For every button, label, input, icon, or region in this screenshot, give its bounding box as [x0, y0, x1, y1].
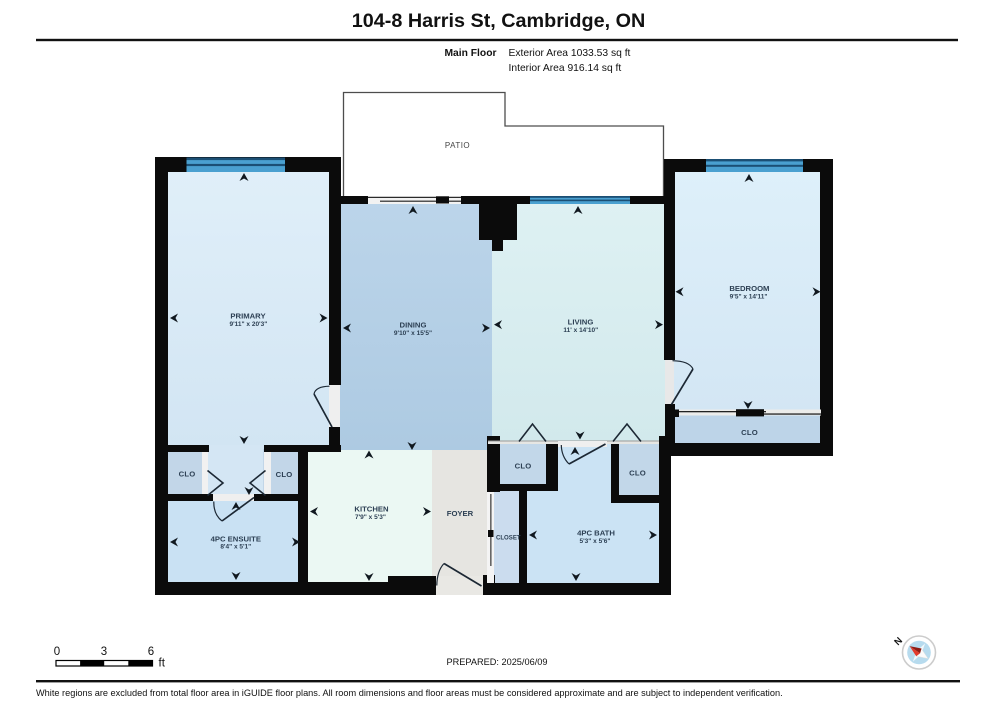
- svg-text:CLO: CLO: [629, 469, 646, 478]
- svg-text:9'10" x 15'5": 9'10" x 15'5": [394, 330, 432, 337]
- svg-text:DINING: DINING: [400, 321, 427, 330]
- svg-text:LIVING: LIVING: [568, 318, 594, 327]
- svg-text:ft: ft: [159, 658, 166, 670]
- svg-text:0: 0: [54, 646, 60, 658]
- svg-text:104-8 Harris St, Cambridge, ON: 104-8 Harris St, Cambridge, ON: [352, 10, 646, 32]
- svg-text:5'3" x 5'6": 5'3" x 5'6": [580, 538, 611, 545]
- svg-text:CLO: CLO: [515, 462, 532, 471]
- svg-text:PRIMARY: PRIMARY: [230, 311, 265, 320]
- svg-text:CLO: CLO: [741, 428, 758, 437]
- svg-text:7'9" x 5'3": 7'9" x 5'3": [355, 514, 386, 521]
- svg-text:Exterior Area 1033.53 sq ft: Exterior Area 1033.53 sq ft: [509, 48, 631, 59]
- svg-text:4PC BATH: 4PC BATH: [577, 529, 615, 538]
- svg-text:9'5" x 14'11": 9'5" x 14'11": [730, 293, 768, 300]
- svg-text:BEDROOM: BEDROOM: [729, 284, 769, 293]
- svg-text:11' x 14'10": 11' x 14'10": [563, 327, 598, 334]
- svg-text:8'4" x 5'1": 8'4" x 5'1": [220, 544, 251, 551]
- svg-text:FOYER: FOYER: [447, 509, 474, 518]
- svg-text:White regions are excluded fro: White regions are excluded from total fl…: [36, 688, 783, 698]
- svg-text:PATIO: PATIO: [445, 141, 470, 150]
- svg-text:KITCHEN: KITCHEN: [354, 504, 389, 513]
- svg-text:Interior Area 916.14 sq ft: Interior Area 916.14 sq ft: [509, 63, 622, 74]
- svg-text:6: 6: [148, 646, 154, 658]
- svg-text:CLO: CLO: [276, 470, 293, 479]
- svg-text:CLOSET: CLOSET: [496, 534, 521, 541]
- svg-text:9'11" x 20'3": 9'11" x 20'3": [229, 321, 267, 328]
- svg-text:Main Floor: Main Floor: [444, 48, 496, 59]
- svg-text:3: 3: [101, 646, 107, 658]
- svg-text:PREPARED: 2025/06/09: PREPARED: 2025/06/09: [447, 657, 548, 667]
- svg-text:CLO: CLO: [179, 470, 196, 479]
- svg-text:4PC ENSUITE: 4PC ENSUITE: [211, 534, 261, 543]
